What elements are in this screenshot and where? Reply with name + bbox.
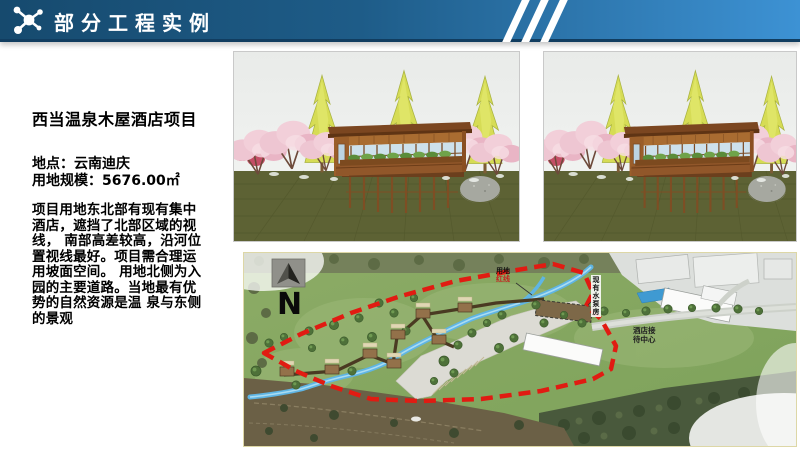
project-title: 西当温泉木屋酒店项目 — [32, 106, 222, 130]
site-plan-image: N 用地 红线 现有水泵房 酒店接 待中心 — [243, 252, 797, 447]
project-location: 地点：云南迪庆 — [32, 156, 222, 173]
page-title: 部分工程实例 — [54, 7, 216, 36]
north-arrow-icon — [272, 259, 305, 287]
project-description: 项目用地东北部有现有集中 酒店，遮挡了北部区域的视 线， 南部高差较高，沿河位 … — [32, 203, 222, 327]
header-bar: 部分工程实例 — [0, 0, 800, 42]
north-label: N — [277, 287, 302, 322]
reception-label: 酒店接 待中心 — [633, 327, 656, 344]
reception-label-line2: 待中心 — [633, 336, 656, 345]
boundary-label: 用地 红线 — [496, 268, 510, 283]
rendering-image-1 — [233, 51, 520, 242]
rendering-image-2 — [543, 51, 797, 242]
project-info-panel: 西当温泉木屋酒店项目 地点：云南迪庆 用地规模：5676.00㎡ 项目用地东北部… — [32, 106, 222, 327]
boundary-label-line2: 红线 — [496, 276, 510, 284]
project-land-area: 用地规模：5676.00㎡ — [32, 173, 222, 190]
pump-house-label: 现有水泵房 — [591, 275, 601, 317]
slide: 部分工程实例 西当温泉木屋酒店项目 地点：云南迪庆 用地规模：5676.00㎡ … — [0, 0, 800, 450]
molecule-logo-icon — [9, 4, 47, 36]
